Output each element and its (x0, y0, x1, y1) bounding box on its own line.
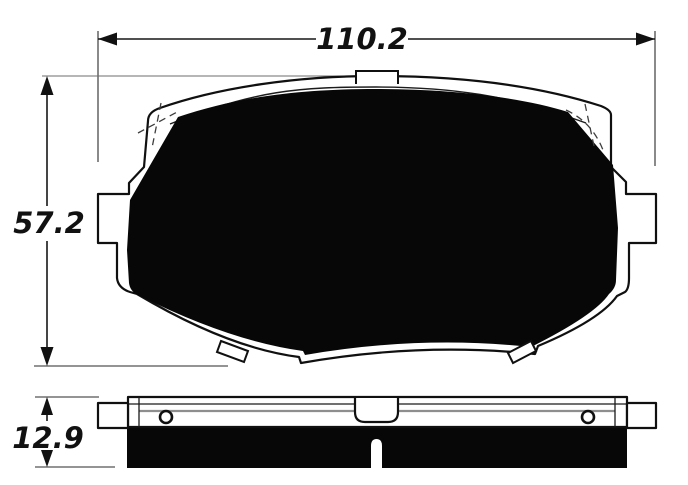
drawing-svg: 110.2 57.2 (0, 0, 688, 485)
friction-material-front (127, 89, 618, 355)
width-arrow-left-icon (98, 33, 117, 46)
thickness-dimension-label: 12.9 (12, 421, 84, 455)
side-ear-left (98, 403, 128, 428)
rivet-hole-left (160, 411, 172, 423)
center-clip-tab (355, 398, 398, 422)
width-arrow-right-icon (636, 33, 655, 46)
top-abutment-tab (356, 71, 398, 84)
thickness-arrow-up-icon (41, 397, 53, 415)
height-dimension-label: 57.2 (13, 206, 85, 240)
friction-center-slot (371, 439, 382, 468)
pad-front-view (98, 71, 656, 363)
height-arrow-down-icon (41, 347, 54, 366)
rivet-hole-right (582, 411, 594, 423)
brake-pad-dimension-drawing: 110.2 57.2 (0, 0, 688, 485)
height-arrow-up-icon (41, 76, 54, 95)
width-dimension-label: 110.2 (316, 22, 408, 56)
side-ear-right (627, 403, 656, 428)
pad-side-view (98, 397, 656, 468)
